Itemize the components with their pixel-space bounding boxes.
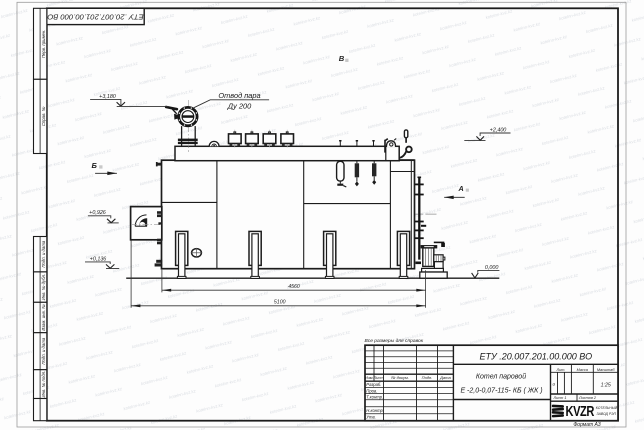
svg-text:Дата: Дата (439, 375, 451, 380)
svg-text:Отвод пара: Отвод пара (218, 91, 260, 100)
svg-text:1:25: 1:25 (601, 383, 611, 389)
svg-text:+3,180: +3,180 (99, 94, 116, 100)
svg-text:В: В (339, 54, 345, 63)
svg-text:5100: 5100 (274, 299, 286, 305)
svg-text:Формат А3: Формат А3 (573, 422, 601, 428)
svg-text:Изм.: Изм. (365, 375, 374, 380)
svg-text:Пров.: Пров. (366, 388, 377, 393)
svg-text:Подп.: Подп. (422, 375, 433, 380)
svg-text:KVZR: KVZR (566, 403, 595, 420)
svg-text:Утв.: Утв. (366, 414, 376, 419)
svg-text:Инв. № подл.: Инв. № подл. (41, 371, 46, 398)
svg-text:Котел паровой: Котел паровой (476, 373, 526, 381)
svg-text:Е -2,0-0,07-115- КБ ( ЖК ): Е -2,0-0,07-115- КБ ( ЖК ) (460, 388, 542, 395)
svg-text:Лит.: Лит. (556, 368, 566, 372)
svg-text:Т.контр.: Т.контр. (366, 395, 383, 400)
svg-text:ЕТУ .20.007.201.00.000 ВО: ЕТУ .20.007.201.00.000 ВО (47, 12, 143, 21)
svg-text:Все размеры для справок: Все размеры для справок (365, 338, 424, 344)
svg-text:Взам. инв. №: Взам. инв. № (41, 304, 46, 331)
svg-text:Б: Б (92, 161, 98, 170)
svg-text:Инв. № дубл.: Инв. № дубл. (41, 274, 46, 300)
svg-text:Масштаб: Масштаб (597, 368, 616, 372)
svg-text:Листов 2: Листов 2 (578, 396, 597, 400)
svg-text:Масса: Масса (577, 368, 588, 372)
svg-text:Лист: Лист (372, 375, 384, 380)
svg-text:Справ. №: Справ. № (41, 106, 46, 126)
svg-text:Лист 1: Лист 1 (553, 396, 567, 400)
svg-text:Разраб.: Разраб. (366, 382, 381, 387)
svg-text:Перв. примен.: Перв. примен. (41, 30, 46, 59)
svg-text:КОТЕЛЬНЫЙ: КОТЕЛЬНЫЙ (596, 406, 618, 410)
svg-text:Ду 200: Ду 200 (227, 101, 252, 110)
svg-text:и: и (553, 381, 556, 386)
svg-text:Н.контр.: Н.контр. (366, 408, 384, 413)
svg-text:А: А (458, 184, 464, 193)
svg-text:№ докум.: № докум. (391, 375, 409, 380)
svg-text:4560: 4560 (288, 284, 300, 290)
svg-text:+2,400: +2,400 (490, 127, 507, 133)
svg-text:Подп. и дата: Подп. и дата (41, 337, 46, 365)
svg-text:ЗАВОД РЭП: ЗАВОД РЭП (597, 412, 617, 416)
svg-text:+0,926: +0,926 (89, 210, 106, 216)
svg-text:ЕТУ .20.007.201.00.000 ВО: ЕТУ .20.007.201.00.000 ВО (479, 351, 592, 361)
svg-text:Подп. и дата: Подп. и дата (41, 240, 46, 268)
